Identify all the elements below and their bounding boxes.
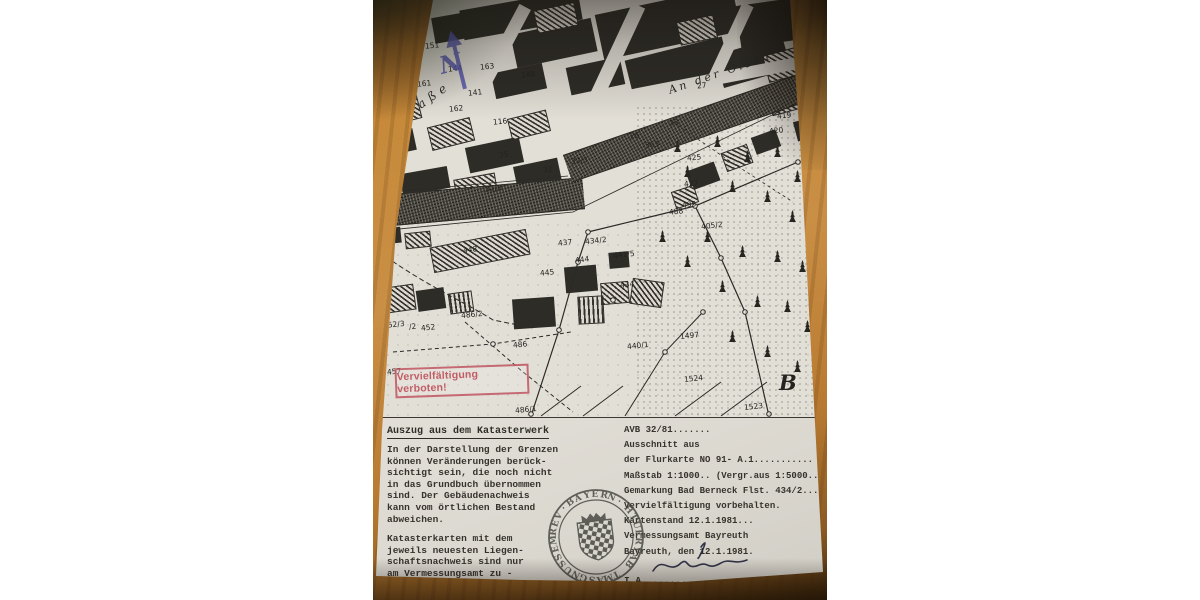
photo-cadastral-document: 151144163161148162116141353232/332/82636…: [373, 0, 827, 600]
seal-ring-letter: R: [632, 537, 643, 545]
prohibition-stamp: Vervielfältigung verboten!: [395, 364, 530, 399]
parcel-number: /2: [409, 322, 417, 332]
notice-heading: Auszug aus dem Katasterwerk: [387, 426, 549, 439]
parcel-number: 148: [521, 69, 536, 79]
parcel-number: 32: [543, 165, 553, 175]
document-text-area: Auszug aus dem Katasterwerk In der Darst…: [373, 417, 827, 600]
parcel-number: 32/8: [485, 183, 503, 194]
parcel-number: 495: [682, 199, 697, 209]
parcel-number: 434: [620, 279, 635, 289]
parcel-number: 444: [575, 254, 590, 264]
handwritten-signature: [645, 539, 765, 579]
map-section-letter: B: [779, 370, 797, 395]
parcel-number: 363: [645, 139, 660, 149]
parcel-number: 419: [777, 110, 792, 120]
screenshot-canvas: 151144163161148162116141353232/332/82636…: [0, 0, 1200, 600]
parcel-number: 32/3: [571, 155, 589, 166]
parcel-number: 163: [480, 61, 495, 71]
parcel-number: 23: [669, 118, 679, 128]
north-letter: N: [435, 46, 465, 80]
seal-ring-letter: E: [592, 490, 599, 500]
parcel-number: 486: [513, 339, 528, 349]
paper-sheet: 151144163161148162116141353232/332/82636…: [373, 0, 827, 600]
parcel-number: 437: [558, 237, 573, 247]
seal-ring-letter: E: [632, 529, 643, 537]
parcel-number: 448: [463, 244, 478, 254]
seal-ring-letter: Y: [582, 490, 591, 501]
parcel-number: 26: [630, 131, 640, 141]
parcel-number: 116: [493, 116, 508, 126]
bavarian-coat-of-arms: [576, 511, 615, 562]
parcel-number: 488: [669, 206, 684, 216]
parcel-number: 425: [687, 152, 702, 162]
parcel-number: 35: [499, 150, 509, 160]
parcel-number: 420: [769, 125, 784, 135]
parcel-number: 445: [540, 267, 555, 277]
cadastral-map: 151144163161148162116141353232/332/82636…: [373, 0, 827, 418]
parcel-number: 452: [421, 322, 436, 332]
parcel-number: 427: [684, 178, 699, 188]
parcel-number: 162: [449, 103, 464, 113]
